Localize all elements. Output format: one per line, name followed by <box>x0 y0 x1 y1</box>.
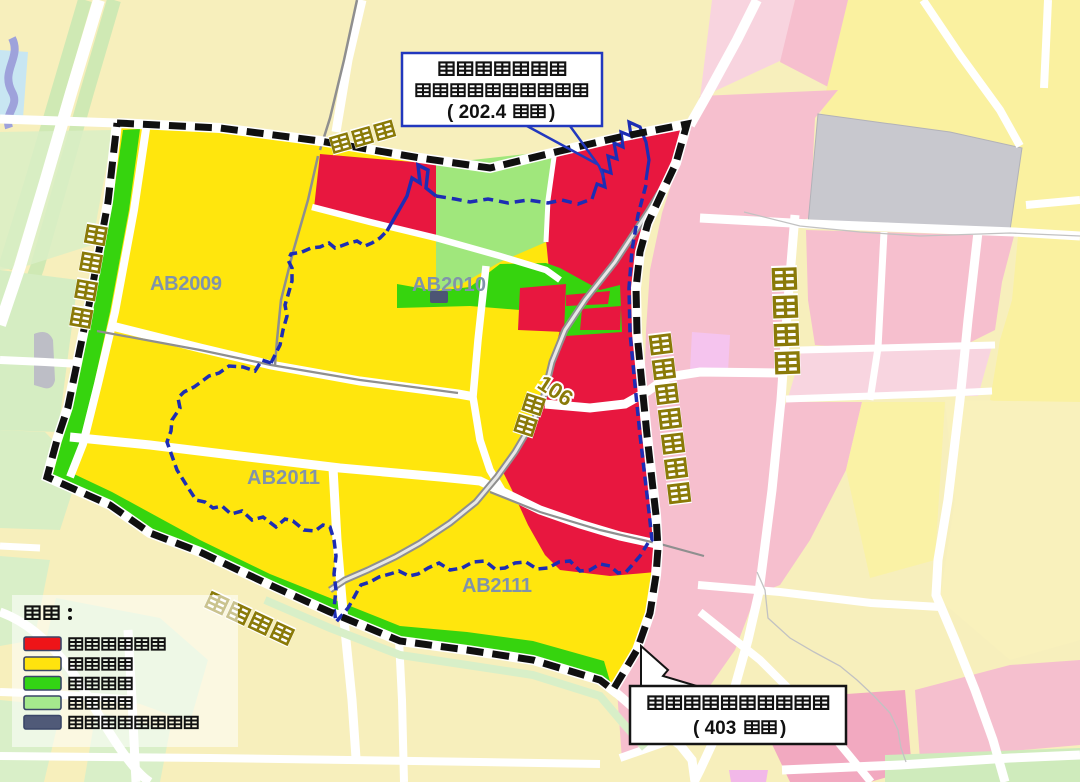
svg-text:( 403: ( 403 <box>693 718 736 739</box>
svg-text:AB2009: AB2009 <box>150 273 222 295</box>
svg-text:AB2111: AB2111 <box>462 575 532 597</box>
svg-text:AB2010: AB2010 <box>412 274 486 296</box>
svg-text:): ) <box>780 718 786 739</box>
svg-text:( 202.4: ( 202.4 <box>447 102 507 123</box>
svg-text:): ) <box>549 102 555 123</box>
svg-text:AB2011: AB2011 <box>247 467 320 489</box>
